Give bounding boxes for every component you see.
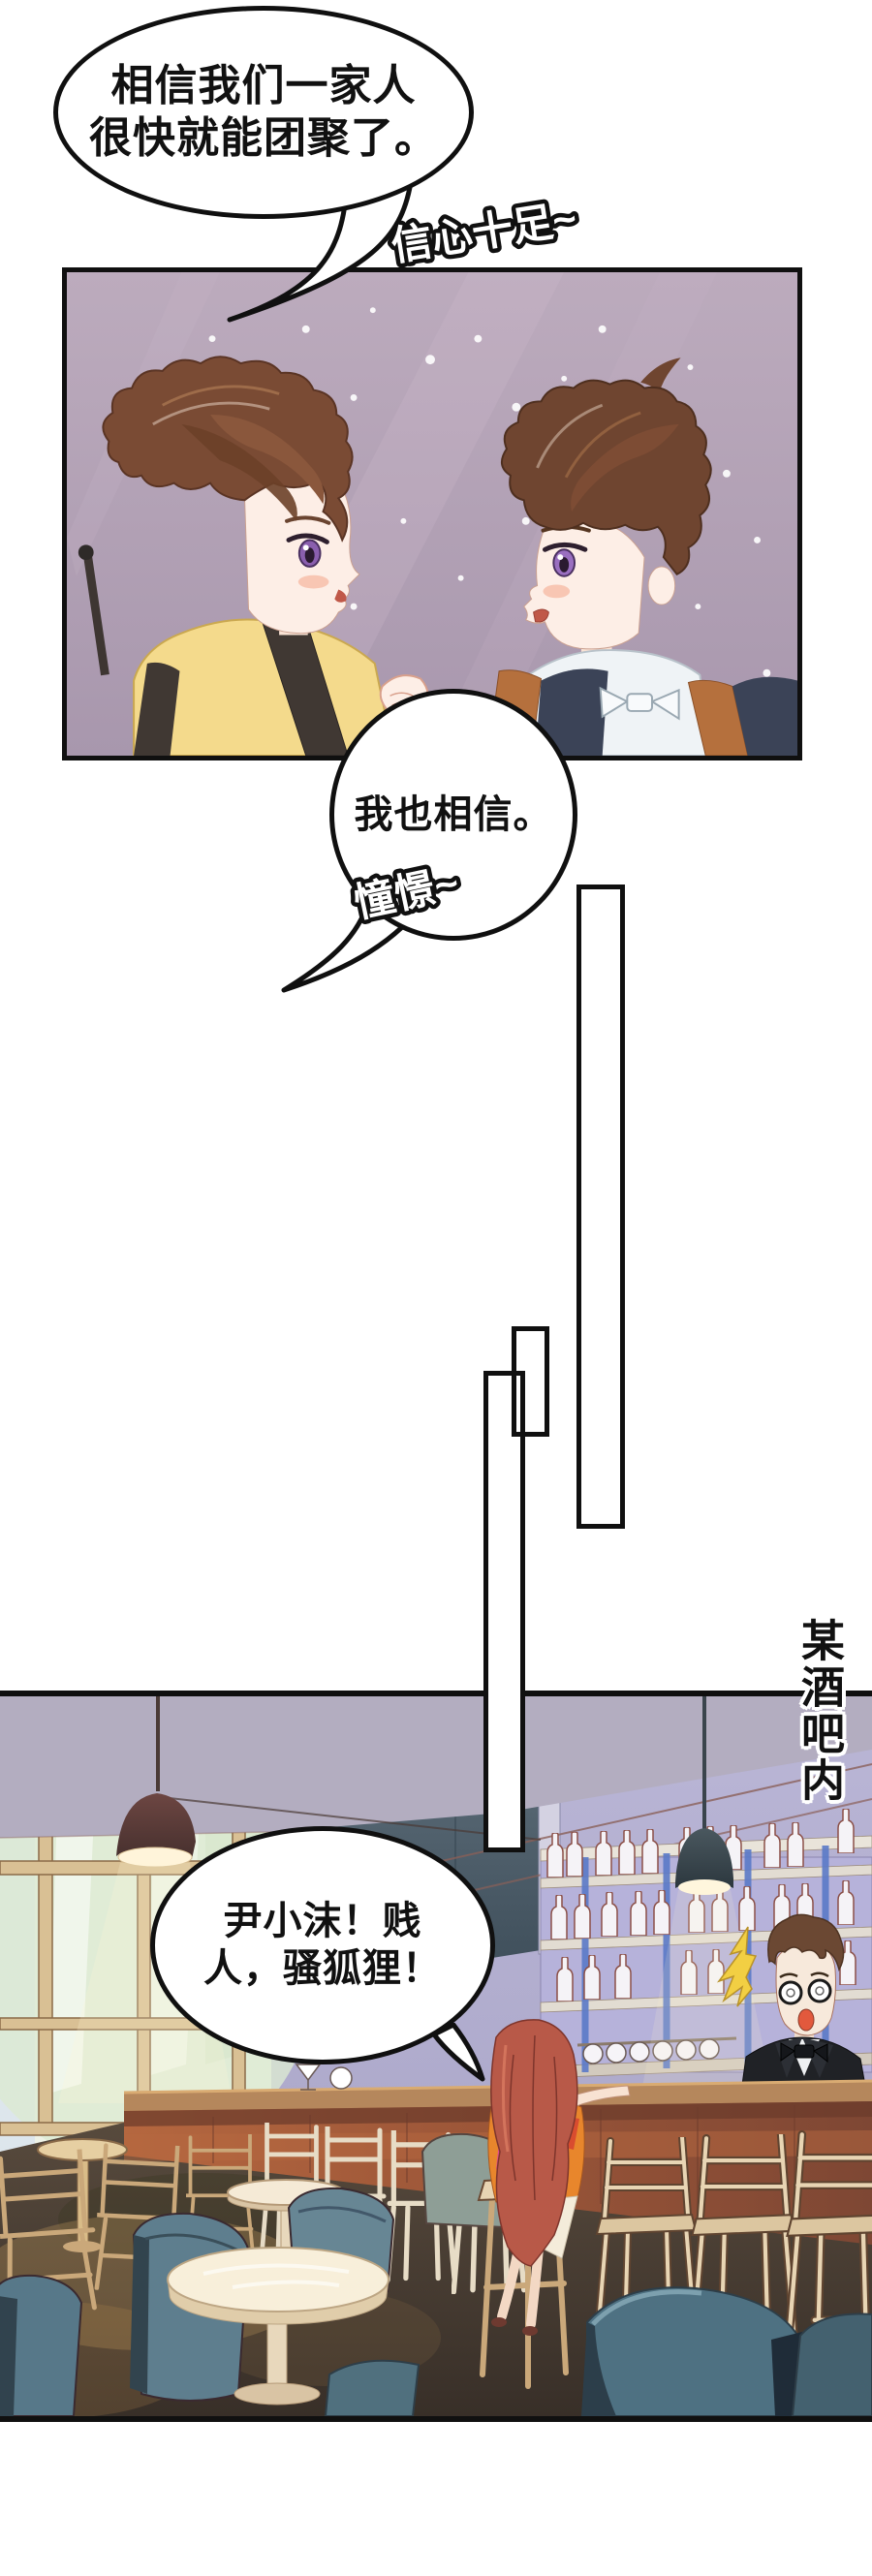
comic-page: 相信我们一家人 很快就能团聚了。 信心十足~ [0,0,872,2576]
blush [298,575,329,589]
sfx-confidence: 信心十足~ [373,192,601,274]
speech-bubble-reunion: 相信我们一家人 很快就能团聚了。 [53,6,474,219]
open-mouth [798,2009,814,2031]
ear [648,567,675,605]
bubble-text-line: 人，骚狐狸！ [203,1945,442,1993]
panel-boys-art [67,272,797,756]
shoe [491,2317,507,2327]
scene-label-vertical: 某酒吧内 [789,1618,849,1841]
panel-boys [62,267,802,760]
transition-bar-1 [576,885,625,1529]
transition-bar-2 [512,1326,549,1437]
blush [543,585,570,599]
bubble-text-line: 我也相信。 [355,791,553,839]
svg-text:憧憬~: 憧憬~ [351,859,463,926]
bubble-text-line: 很快就能团聚了。 [89,112,438,165]
transition-bar-3 [483,1371,525,1852]
svg-text:信心十足~: 信心十足~ [389,195,580,269]
sfx-longing: 憧憬~ [305,845,514,942]
shoe [522,2326,538,2336]
bubble-text-line: 尹小沫！贱 [224,1898,422,1945]
speech-bubble-insult: 尹小沫！贱 人，骚狐狸！ [150,1826,495,2064]
bubble-text-line: 相信我们一家人 [111,60,417,112]
